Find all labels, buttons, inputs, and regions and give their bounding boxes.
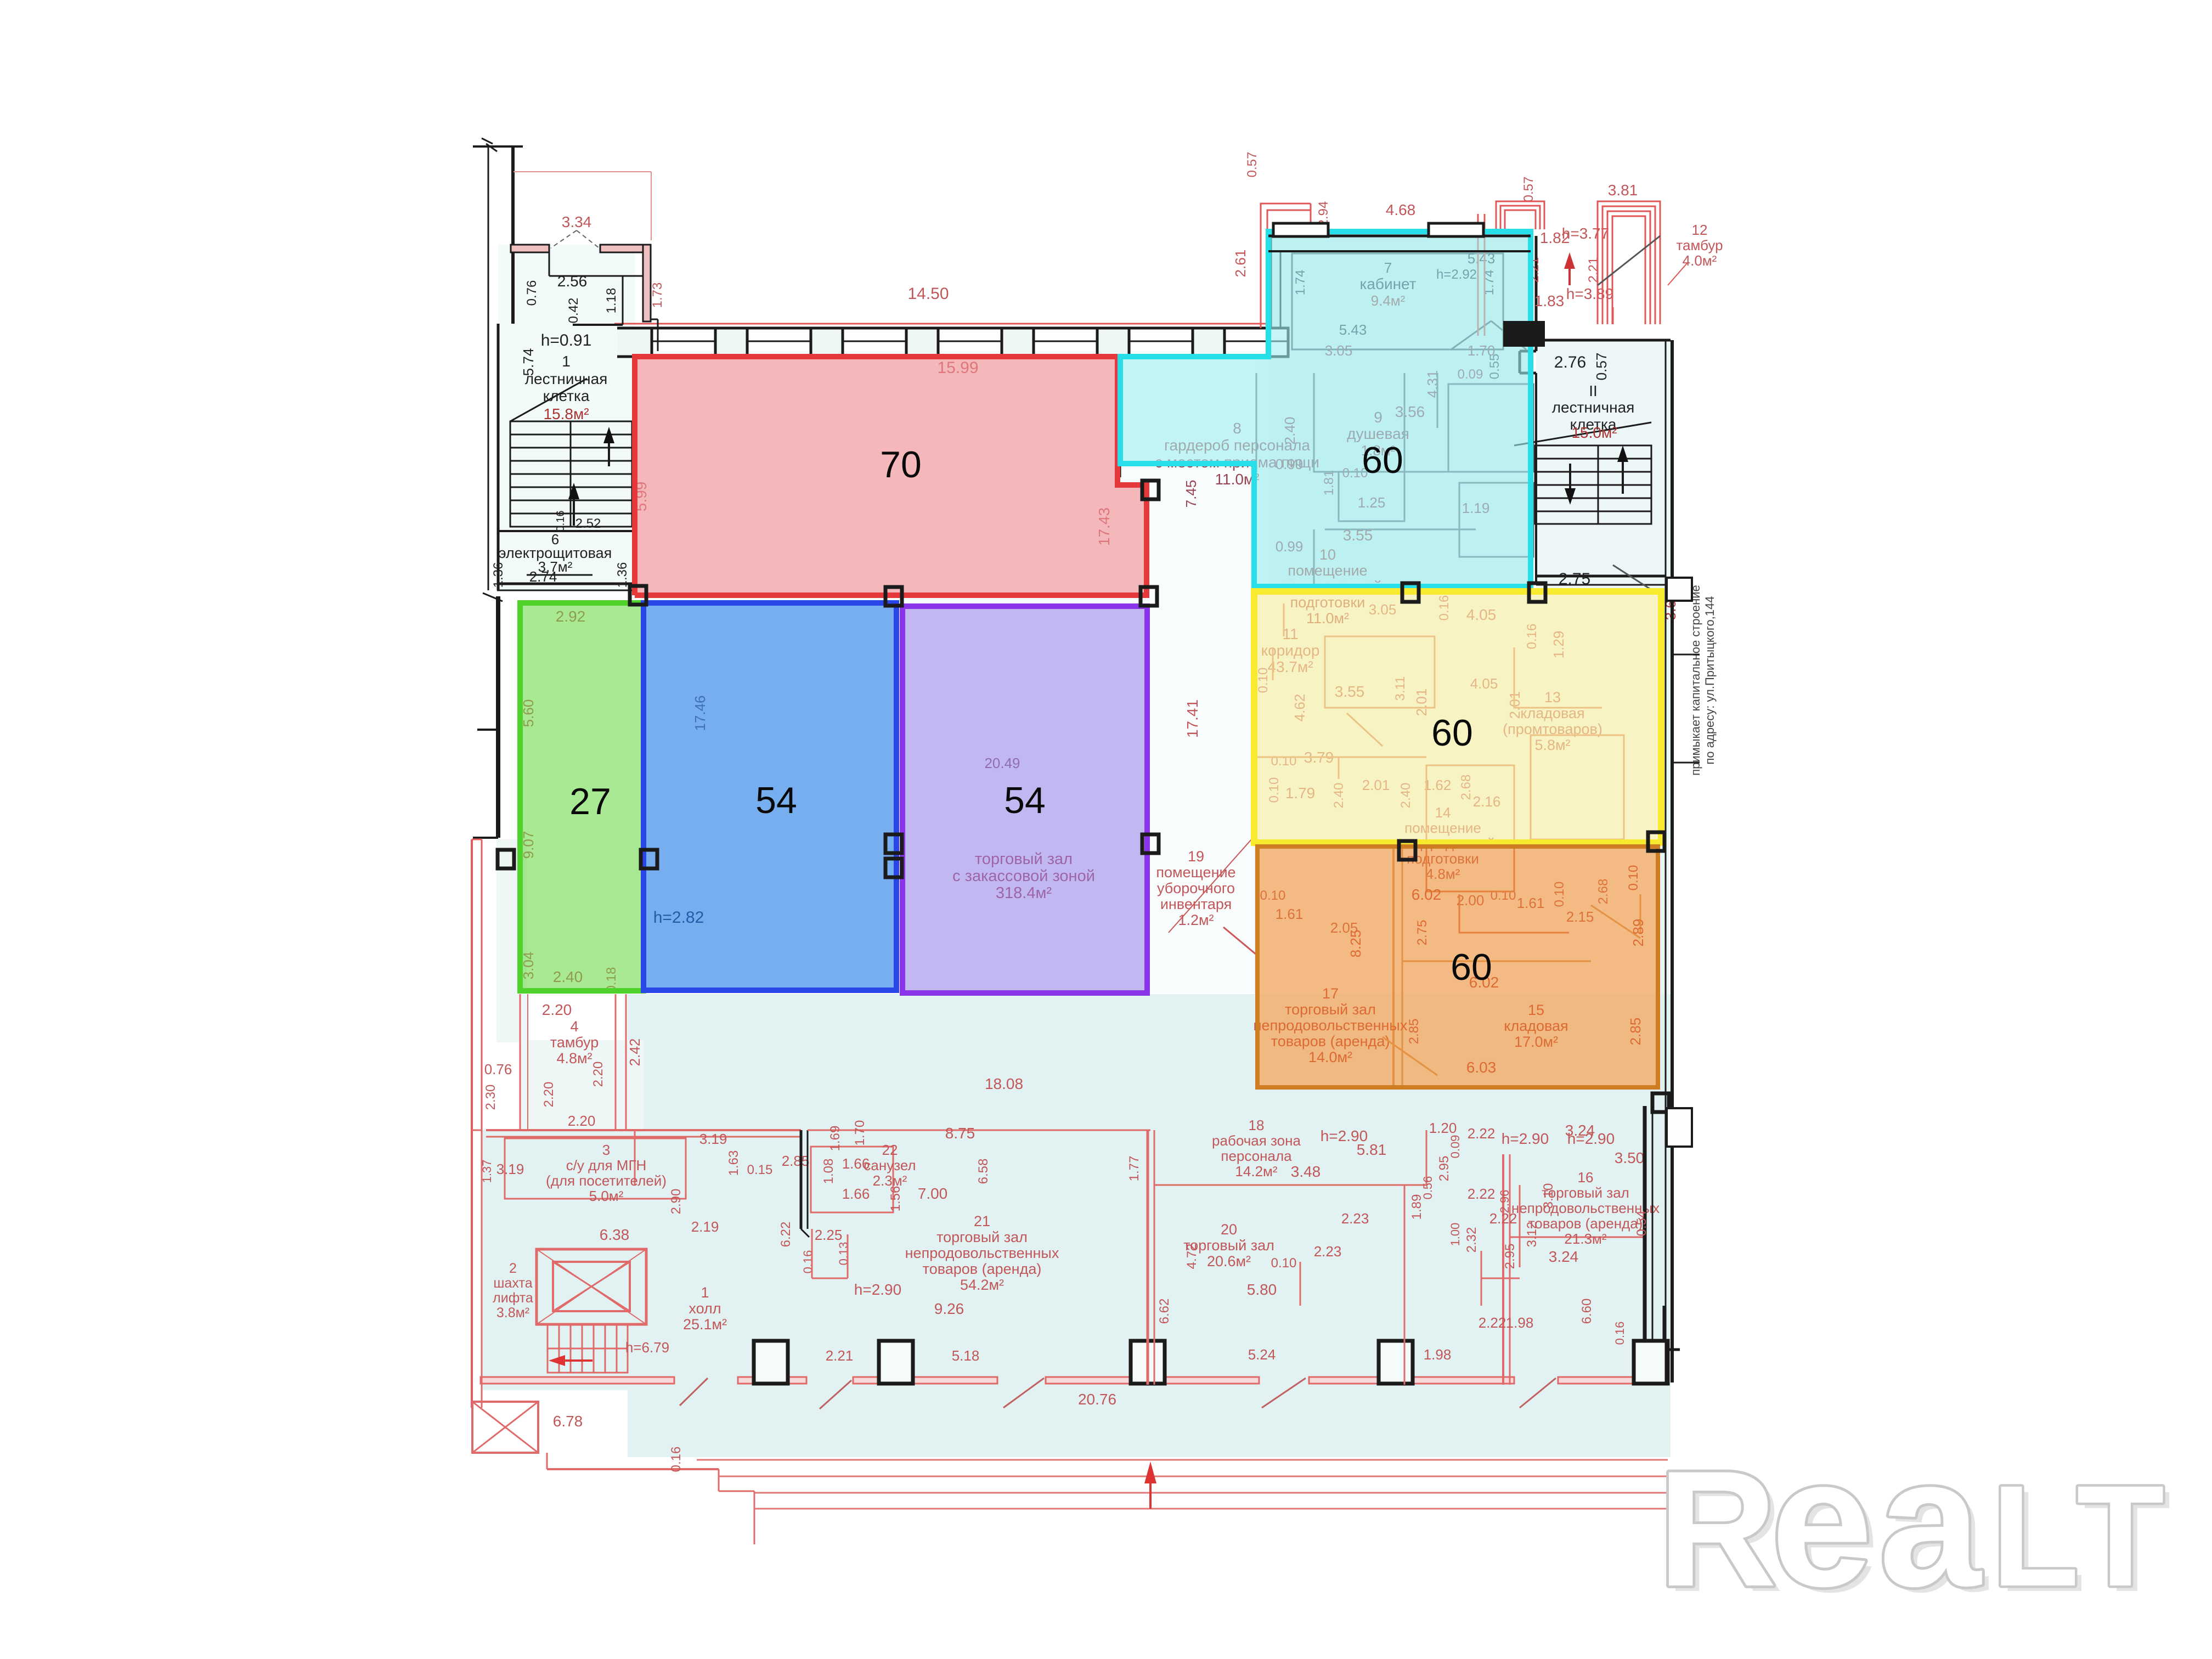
svg-text:18.08: 18.08 [985,1075,1023,1092]
svg-text:0.16: 0.16 [669,1447,684,1472]
svg-text:2.25: 2.25 [815,1227,843,1243]
svg-text:4.72: 4.72 [1184,1244,1199,1269]
svg-text:2.20: 2.20 [568,1113,596,1129]
svg-text:5.18: 5.18 [952,1347,980,1364]
svg-text:21.3м²: 21.3м² [1564,1231,1606,1247]
svg-text:помещение: помещение [1156,864,1235,881]
svg-text:e: e [1771,1420,1873,1624]
svg-text:товаров (аренда): товаров (аренда) [1528,1215,1643,1232]
svg-text:2.22: 2.22 [1468,1125,1496,1142]
svg-text:9.26: 9.26 [934,1300,964,1317]
svg-text:0.56: 0.56 [1421,1176,1435,1200]
svg-text:шахта: шахта [493,1276,532,1291]
svg-text:1.73: 1.73 [650,283,665,308]
svg-text:5.81: 5.81 [1357,1141,1387,1158]
svg-text:2.30: 2.30 [483,1085,498,1110]
svg-text:3.24: 3.24 [1549,1248,1579,1265]
svg-text:6.58: 6.58 [976,1159,991,1184]
svg-text:22: 22 [882,1142,898,1158]
svg-text:1.98: 1.98 [1506,1314,1534,1331]
svg-text:70: 70 [880,444,922,486]
svg-text:0.16: 0.16 [555,511,567,532]
svg-text:1.56: 1.56 [888,1186,903,1212]
svg-text:2.21: 2.21 [1586,257,1601,283]
svg-text:2.32: 2.32 [1464,1227,1479,1253]
svg-text:19: 19 [1188,848,1204,865]
svg-text:54.2м²: 54.2м² [960,1277,1004,1293]
svg-text:2: 2 [509,1261,517,1276]
svg-text:2.56: 2.56 [557,273,588,290]
svg-text:h=2.90: h=2.90 [854,1281,901,1298]
svg-text:3.48: 3.48 [1291,1163,1321,1180]
svg-text:2.75: 2.75 [1559,570,1590,588]
svg-text:4: 4 [570,1018,578,1035]
svg-text:3.19: 3.19 [496,1161,524,1177]
svg-text:по адресу: ул.Притыцкого,144: по адресу: ул.Притыцкого,144 [1703,596,1717,764]
svg-text:3.10: 3.10 [1541,1183,1556,1209]
svg-text:0.54: 0.54 [1634,1211,1649,1237]
svg-text:1.77: 1.77 [1127,1156,1142,1182]
svg-text:14.2м²: 14.2м² [1235,1163,1277,1180]
svg-text:2.23: 2.23 [1314,1243,1342,1260]
svg-text:2.23: 2.23 [1341,1210,1369,1227]
svg-text:6.60: 6.60 [1579,1299,1594,1324]
svg-text:2.19: 2.19 [691,1218,719,1235]
svg-text:1.69: 1.69 [828,1126,843,1152]
svg-text:25.1м²: 25.1м² [683,1316,727,1333]
svg-text:6.38: 6.38 [600,1226,630,1243]
svg-text:60: 60 [1451,946,1492,988]
svg-text:лестничная: лестничная [1552,399,1635,416]
svg-text:холл: холл [689,1300,721,1317]
svg-text:1: 1 [562,353,571,370]
svg-text:20: 20 [1221,1221,1237,1238]
svg-text:клетка: клетка [543,387,590,404]
svg-text:0.57: 0.57 [1593,353,1610,381]
svg-text:рабочая зона: рабочая зона [1212,1132,1301,1149]
svg-text:0.57: 0.57 [1245,152,1260,178]
svg-text:12: 12 [1692,222,1708,238]
svg-text:14.50: 14.50 [907,285,949,303]
svg-text:5.74: 5.74 [520,348,537,376]
svg-text:1.36: 1.36 [615,562,630,588]
svg-text:h=2.90: h=2.90 [1502,1130,1549,1147]
svg-text:1.08: 1.08 [821,1159,836,1184]
svg-text:3.34: 3.34 [562,213,592,230]
svg-text:торговый зал: торговый зал [936,1229,1028,1245]
svg-text:h=3.89: h=3.89 [1566,285,1613,302]
svg-text:2.96: 2.96 [1498,1190,1511,1214]
svg-text:3.12: 3.12 [1525,1222,1539,1248]
svg-text:15.8м²: 15.8м² [543,405,589,422]
svg-text:2.90: 2.90 [669,1189,684,1215]
svg-text:2.22: 2.22 [1468,1186,1496,1202]
svg-text:h=0.91: h=0.91 [541,331,592,349]
svg-text:1.2м²: 1.2м² [1178,912,1214,928]
svg-text:0.16: 0.16 [1613,1322,1627,1345]
svg-text:3: 3 [602,1142,610,1158]
svg-text:1.66: 1.66 [842,1155,870,1172]
svg-text:3.19: 3.19 [699,1131,727,1147]
svg-text:3.8м²: 3.8м² [496,1305,529,1321]
svg-text:уборочного: уборочного [1157,880,1235,896]
svg-text:персонала: персонала [1221,1148,1292,1164]
svg-text:2.85: 2.85 [782,1153,810,1169]
svg-text:2.20: 2.20 [541,1082,556,1108]
svg-text:h=6.79: h=6.79 [625,1339,669,1356]
svg-text:a: a [1879,1420,1982,1624]
svg-text:6.62: 6.62 [1157,1299,1172,1324]
svg-text:1.18: 1.18 [604,288,619,314]
svg-text:2.20: 2.20 [591,1062,606,1087]
svg-text:5.80: 5.80 [1247,1281,1277,1298]
svg-text:2.95: 2.95 [1503,1244,1517,1269]
svg-text:1.66: 1.66 [842,1186,870,1202]
svg-text:2.22: 2.22 [1479,1314,1506,1331]
svg-text:2.52: 2.52 [575,516,601,531]
svg-text:2.95: 2.95 [1437,1156,1452,1182]
svg-text:2.76: 2.76 [1554,353,1586,371]
svg-text:0.42: 0.42 [566,298,581,324]
svg-text:1.83: 1.83 [1534,292,1565,309]
svg-text:тамбур: тамбур [550,1034,599,1051]
svg-text:4.68: 4.68 [1386,201,1416,218]
svg-text:1: 1 [701,1284,709,1301]
svg-text:3.81: 3.81 [1608,182,1638,199]
svg-text:2.61: 2.61 [1232,250,1249,278]
svg-text:6.78: 6.78 [553,1413,583,1430]
svg-text:1.36: 1.36 [491,562,506,588]
svg-text:8.75: 8.75 [945,1125,975,1142]
svg-text:0.76: 0.76 [484,1061,512,1077]
svg-text:60: 60 [1362,439,1403,481]
svg-text:4.0м²: 4.0м² [1683,252,1717,269]
svg-text:0.10: 0.10 [1271,1256,1297,1271]
svg-text:16: 16 [1578,1169,1594,1186]
svg-text:5.24: 5.24 [1248,1346,1276,1363]
svg-text:2.20: 2.20 [542,1001,572,1018]
svg-text:1.98: 1.98 [1424,1346,1452,1363]
svg-text:с/у для МГН: с/у для МГН [566,1157,647,1173]
svg-text:лифта: лифта [493,1290,533,1306]
svg-text:санузел: санузел [864,1157,916,1173]
svg-text:0.76: 0.76 [524,280,539,306]
svg-text:тамбур: тамбур [1676,237,1723,253]
svg-text:1.37: 1.37 [480,1160,494,1183]
svg-text:17.41: 17.41 [1184,699,1201,738]
svg-text:лестничная: лестничная [525,370,608,387]
svg-text:20.6м²: 20.6м² [1207,1253,1251,1269]
svg-text:27: 27 [569,781,611,822]
svg-text:инвентаря: инвентаря [1160,896,1232,912]
svg-text:0.57: 0.57 [1521,177,1536,202]
svg-text:0.09: 0.09 [1448,1135,1462,1159]
svg-text:18: 18 [1249,1117,1265,1133]
svg-text:1.20: 1.20 [1429,1120,1457,1136]
svg-text:примыкает капитальное строение: примыкает капитальное строение [1689,585,1702,776]
svg-text:2.21: 2.21 [826,1347,854,1364]
svg-text:непродовольственных: непродовольственных [905,1245,1059,1261]
svg-text:1.00: 1.00 [1448,1223,1462,1246]
svg-text:L: L [1991,1455,2079,1616]
svg-text:(для посетителей): (для посетителей) [546,1172,667,1189]
svg-text:5.0м²: 5.0м² [589,1188,624,1204]
svg-text:7.00: 7.00 [918,1185,948,1202]
svg-text:2.42: 2.42 [627,1039,643,1066]
svg-text:6.22: 6.22 [778,1222,793,1248]
svg-text:15.0м²: 15.0м² [1571,424,1617,441]
svg-text:54: 54 [755,780,797,821]
svg-text:II: II [1589,382,1598,399]
svg-text:4.8м²: 4.8м² [556,1050,592,1066]
svg-text:3.50: 3.50 [1615,1149,1645,1166]
svg-text:54: 54 [1004,780,1046,821]
svg-text:товаров (аренда): товаров (аренда) [923,1261,1042,1277]
svg-text:T: T [2076,1455,2164,1616]
svg-text:20.76: 20.76 [1078,1391,1116,1408]
svg-text:1.63: 1.63 [726,1150,741,1176]
svg-text:60: 60 [1431,712,1473,754]
svg-text:1.70: 1.70 [853,1120,867,1146]
svg-text:3.24: 3.24 [1565,1122,1595,1139]
svg-text:R: R [1658,1436,1777,1621]
svg-text:2.74: 2.74 [529,568,557,585]
svg-text:0.15: 0.15 [747,1163,773,1177]
svg-text:21: 21 [974,1213,990,1229]
svg-text:7.45: 7.45 [1183,480,1199,508]
